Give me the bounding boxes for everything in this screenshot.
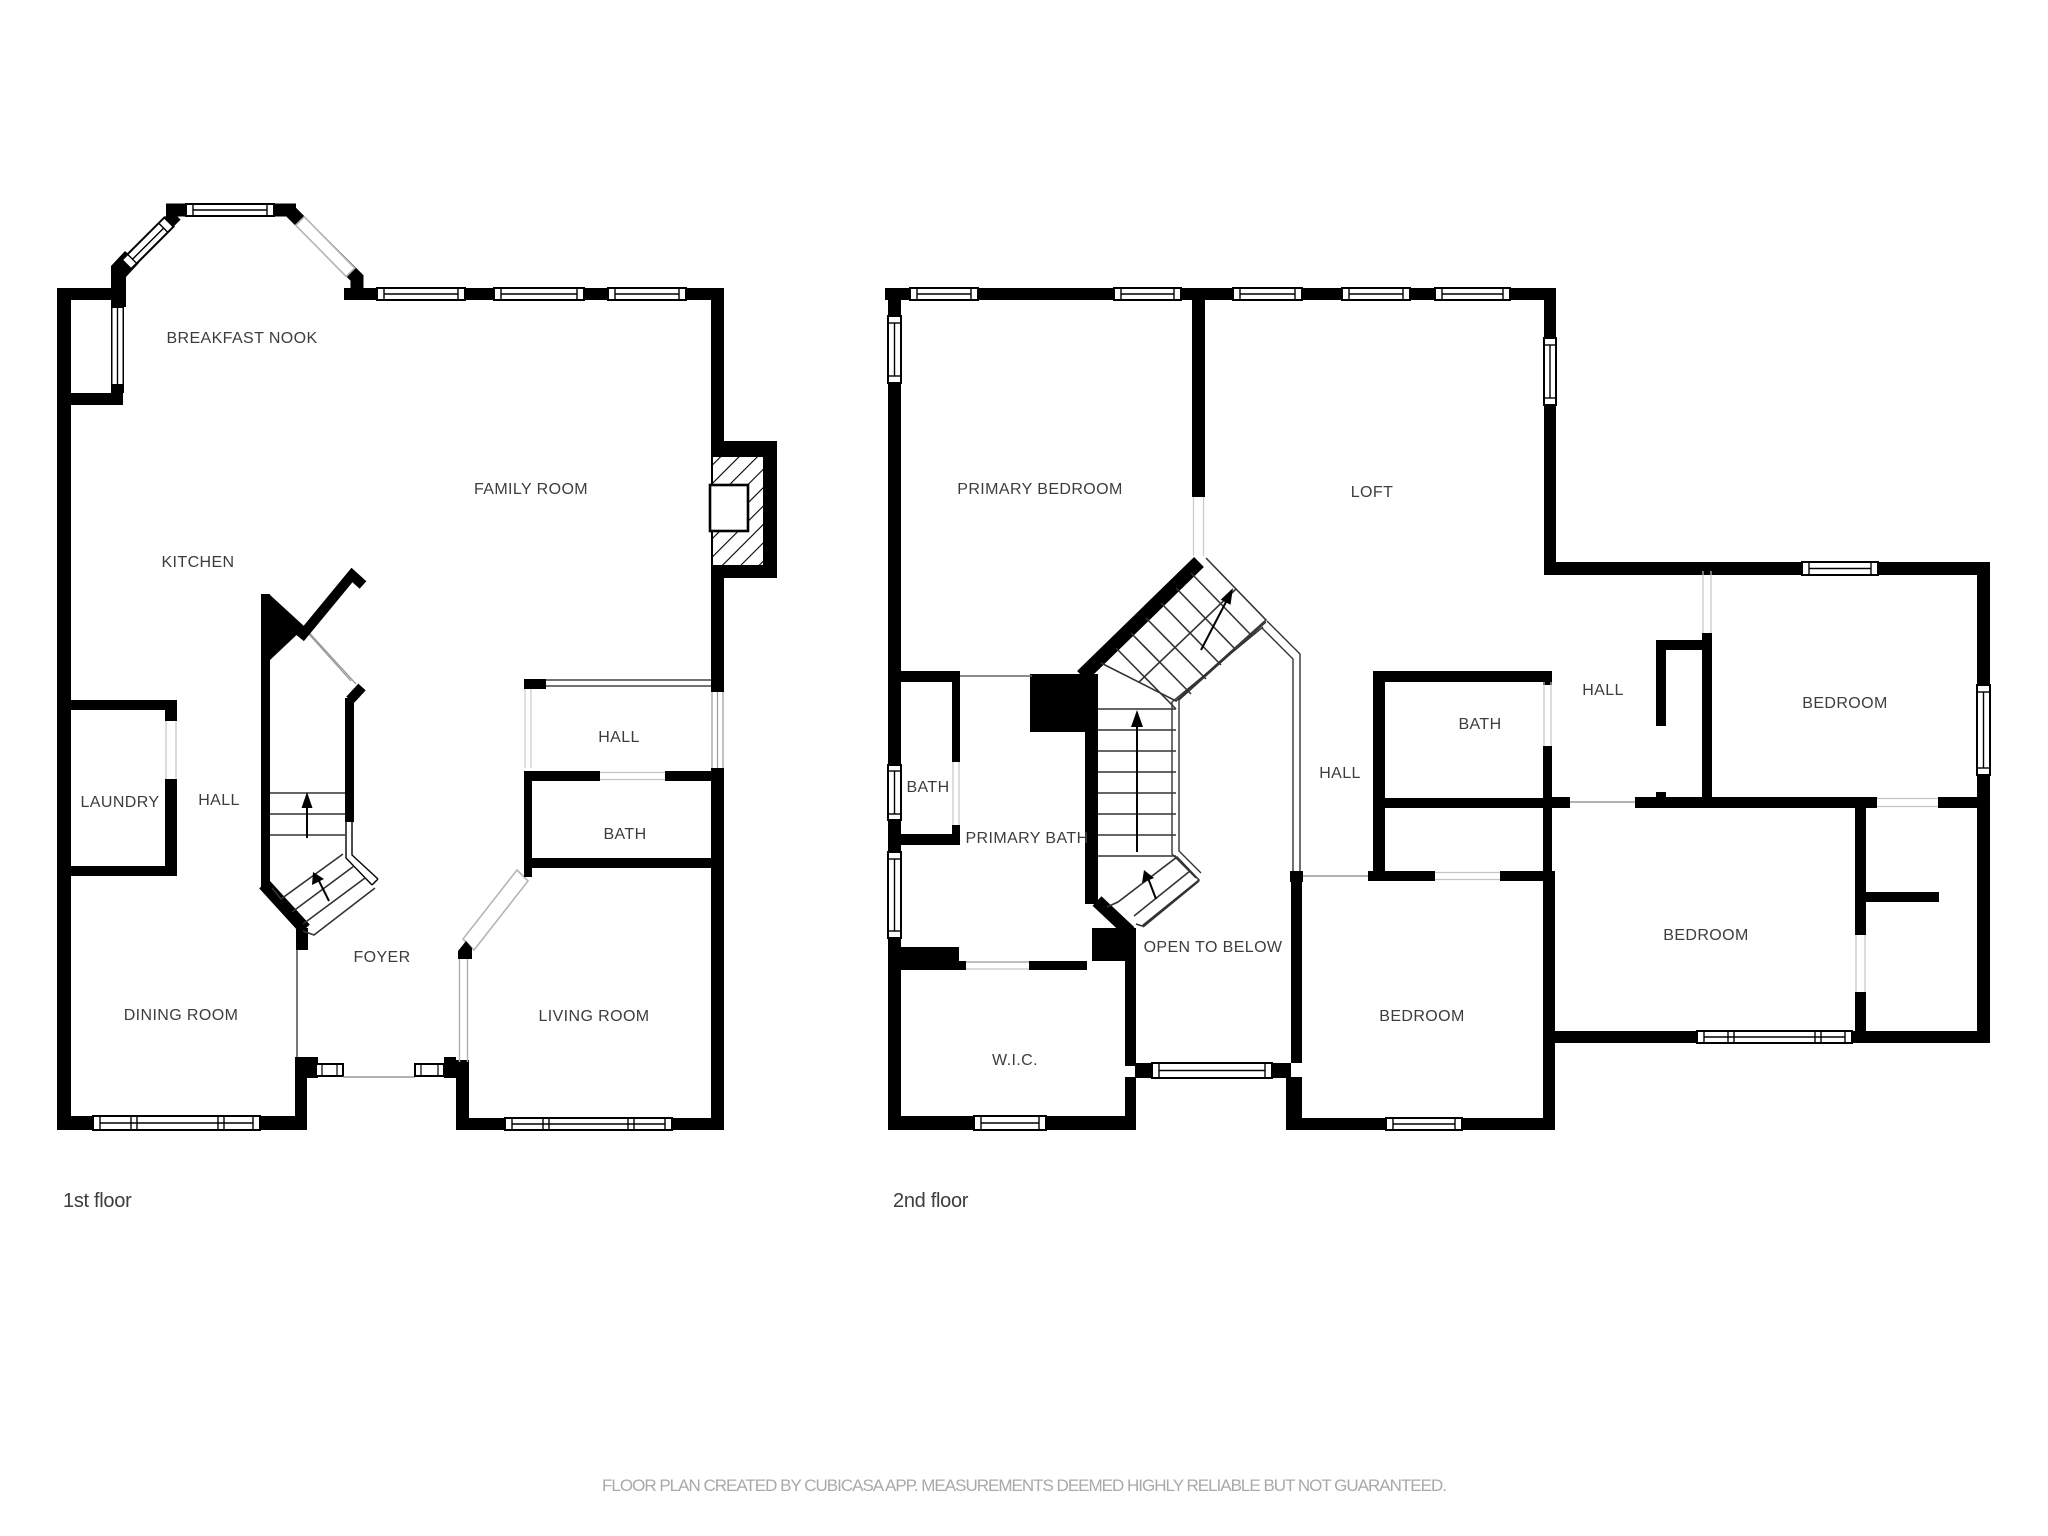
svg-text:PRIMARY BATH: PRIMARY BATH	[965, 830, 1088, 847]
svg-text:BATH: BATH	[1458, 716, 1501, 733]
svg-text:FLOOR PLAN CREATED BY CUBICASA: FLOOR PLAN CREATED BY CUBICASA APP. MEAS…	[602, 1476, 1446, 1495]
svg-text:FAMILY ROOM: FAMILY ROOM	[474, 481, 588, 498]
svg-text:LAUNDRY: LAUNDRY	[81, 794, 160, 811]
svg-text:BEDROOM: BEDROOM	[1663, 927, 1748, 944]
svg-text:W.I.C.: W.I.C.	[992, 1052, 1038, 1069]
svg-text:BATH: BATH	[603, 826, 646, 843]
svg-text:1st floor: 1st floor	[63, 1190, 132, 1212]
svg-text:PRIMARY BEDROOM: PRIMARY BEDROOM	[957, 481, 1122, 498]
svg-text:2nd floor: 2nd floor	[893, 1190, 969, 1212]
svg-text:OPEN TO BELOW: OPEN TO BELOW	[1144, 939, 1283, 956]
svg-text:HALL: HALL	[198, 792, 240, 809]
svg-text:KITCHEN: KITCHEN	[161, 554, 234, 571]
svg-text:LIVING ROOM: LIVING ROOM	[538, 1008, 649, 1025]
svg-text:BEDROOM: BEDROOM	[1379, 1008, 1464, 1025]
svg-text:HALL: HALL	[598, 729, 640, 746]
svg-text:BATH: BATH	[906, 779, 949, 796]
svg-text:HALL: HALL	[1582, 682, 1624, 699]
svg-text:BEDROOM: BEDROOM	[1802, 695, 1887, 712]
svg-text:HALL: HALL	[1319, 765, 1361, 782]
svg-text:FOYER: FOYER	[353, 949, 410, 966]
svg-text:LOFT: LOFT	[1351, 484, 1394, 501]
svg-text:DINING ROOM: DINING ROOM	[124, 1007, 239, 1024]
svg-text:BREAKFAST NOOK: BREAKFAST NOOK	[166, 330, 317, 347]
